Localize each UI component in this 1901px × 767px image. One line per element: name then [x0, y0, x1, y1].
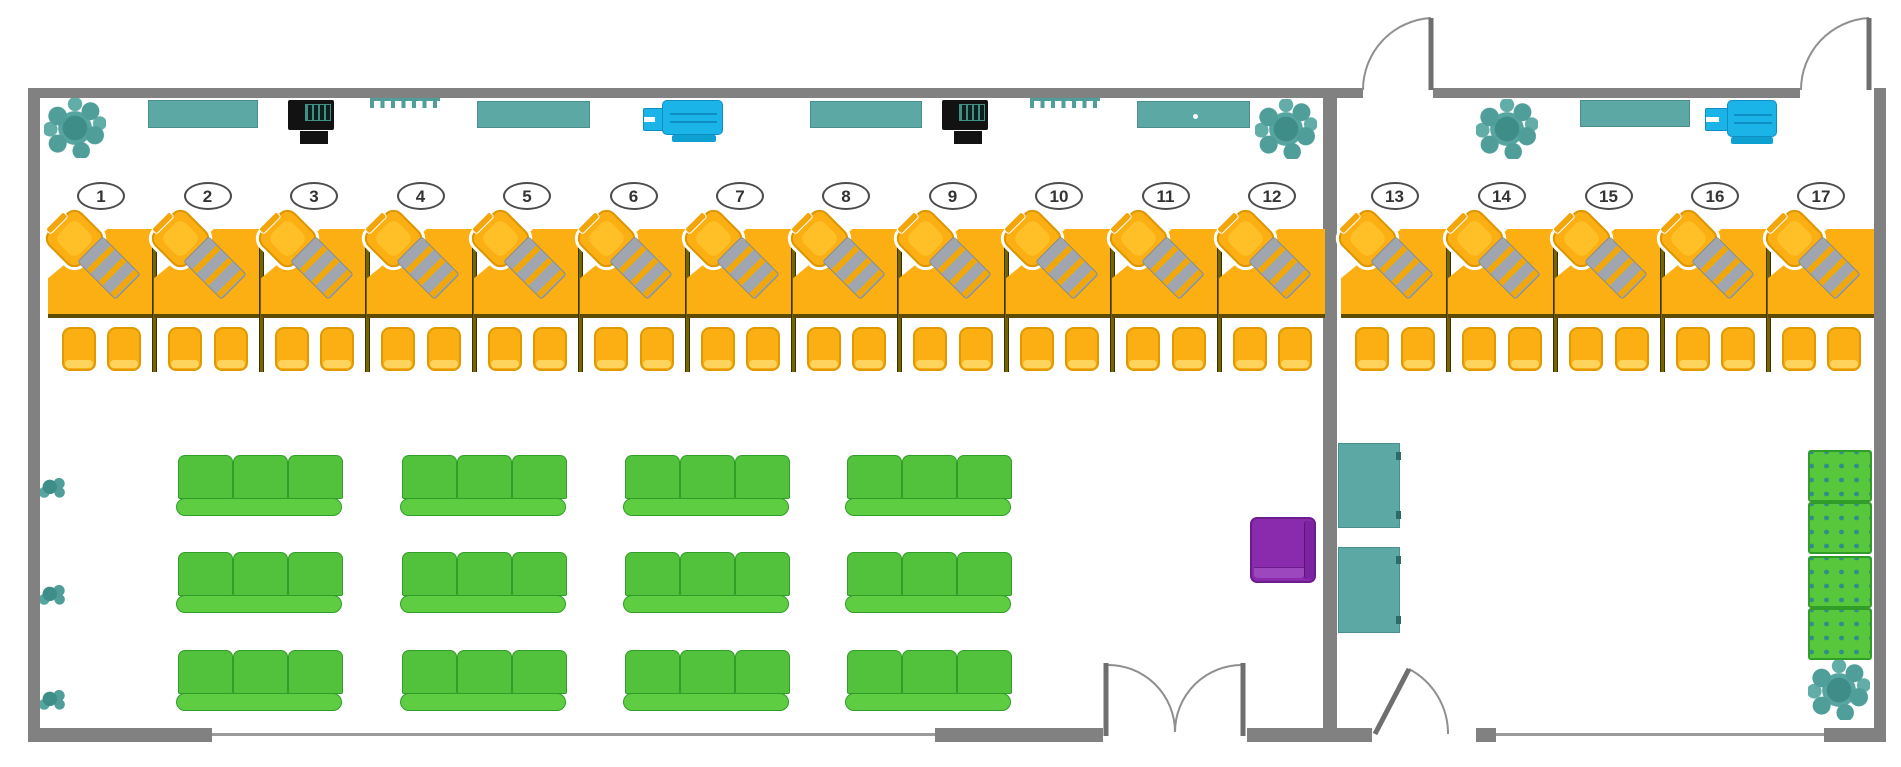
- door-arc-bottom-right: [1409, 669, 1448, 734]
- door-leaf-bottom-right: [1375, 669, 1409, 734]
- floor-plan: 1234567891011121314151617: [0, 0, 1901, 767]
- double-door-arc-right: [1175, 665, 1243, 732]
- door-arc-top-2: [1801, 18, 1869, 90]
- doors-overlay: [0, 0, 1901, 767]
- double-door-arc-left: [1106, 665, 1175, 732]
- door-arc-top-1: [1363, 18, 1431, 90]
